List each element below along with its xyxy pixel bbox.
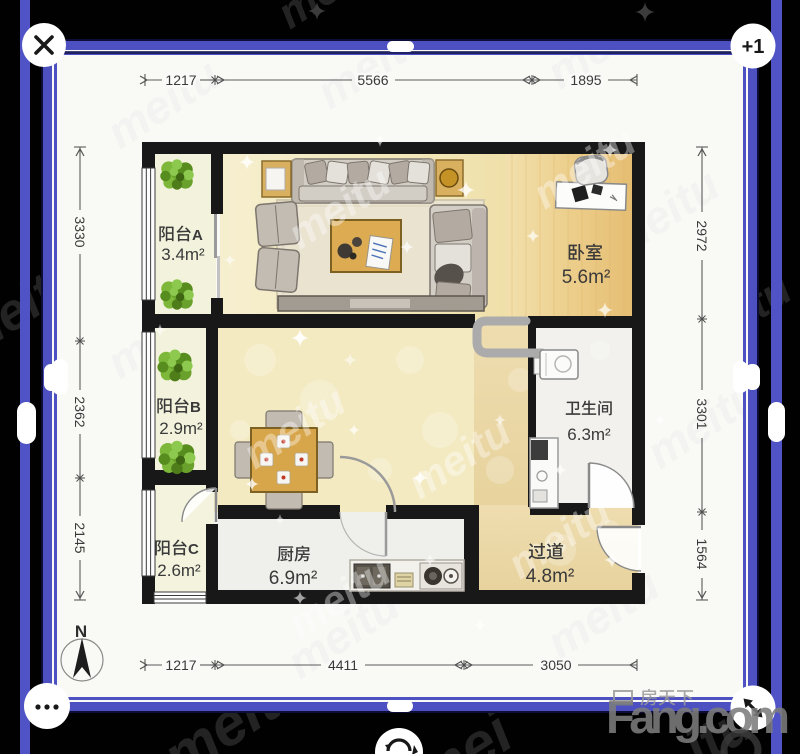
svg-text:C: C — [188, 541, 199, 558]
svg-text:6.3m²: 6.3m² — [567, 425, 611, 444]
svg-text:Fang.com: Fang.com — [606, 690, 788, 743]
svg-text:1564: 1564 — [694, 538, 710, 569]
svg-text:N: N — [75, 622, 87, 641]
svg-text:2362: 2362 — [72, 396, 88, 427]
svg-text:B: B — [190, 399, 201, 416]
svg-text:4411: 4411 — [328, 657, 358, 673]
svg-text:A: A — [192, 227, 203, 244]
svg-text:3050: 3050 — [540, 657, 571, 673]
svg-text:3301: 3301 — [694, 398, 710, 429]
svg-text:3.4m²: 3.4m² — [161, 245, 205, 264]
svg-text:5.6m²: 5.6m² — [562, 267, 611, 288]
svg-text:1217: 1217 — [165, 72, 196, 88]
svg-text:+1: +1 — [742, 36, 765, 58]
svg-text:6.9m²: 6.9m² — [269, 568, 318, 589]
svg-text:2.6m²: 2.6m² — [157, 561, 201, 580]
svg-text:4.8m²: 4.8m² — [526, 566, 575, 587]
svg-text:2972: 2972 — [694, 220, 710, 251]
svg-text:3330: 3330 — [72, 216, 88, 247]
svg-text:5566: 5566 — [357, 72, 388, 88]
svg-text:1217: 1217 — [165, 657, 196, 673]
svg-text:1895: 1895 — [570, 72, 601, 88]
svg-text:2.9m²: 2.9m² — [159, 419, 203, 438]
svg-text:2145: 2145 — [72, 522, 88, 553]
